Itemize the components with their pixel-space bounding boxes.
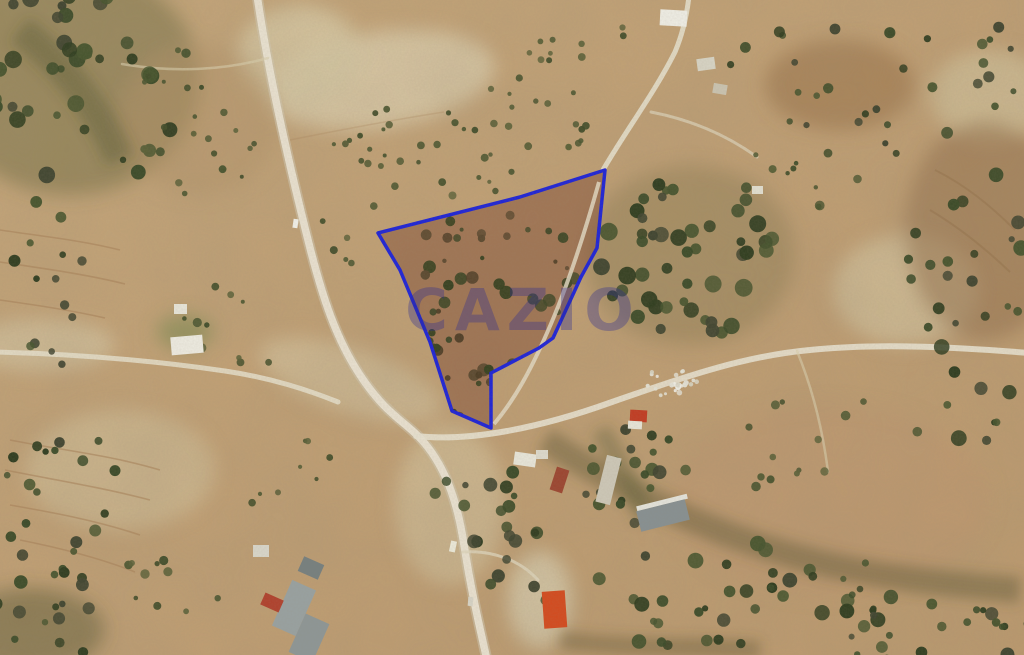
- map-canvas: CAZIO: [0, 0, 1024, 655]
- watermark-text: CAZIO: [405, 276, 640, 344]
- satellite-map-view[interactable]: CAZIO: [0, 0, 1024, 655]
